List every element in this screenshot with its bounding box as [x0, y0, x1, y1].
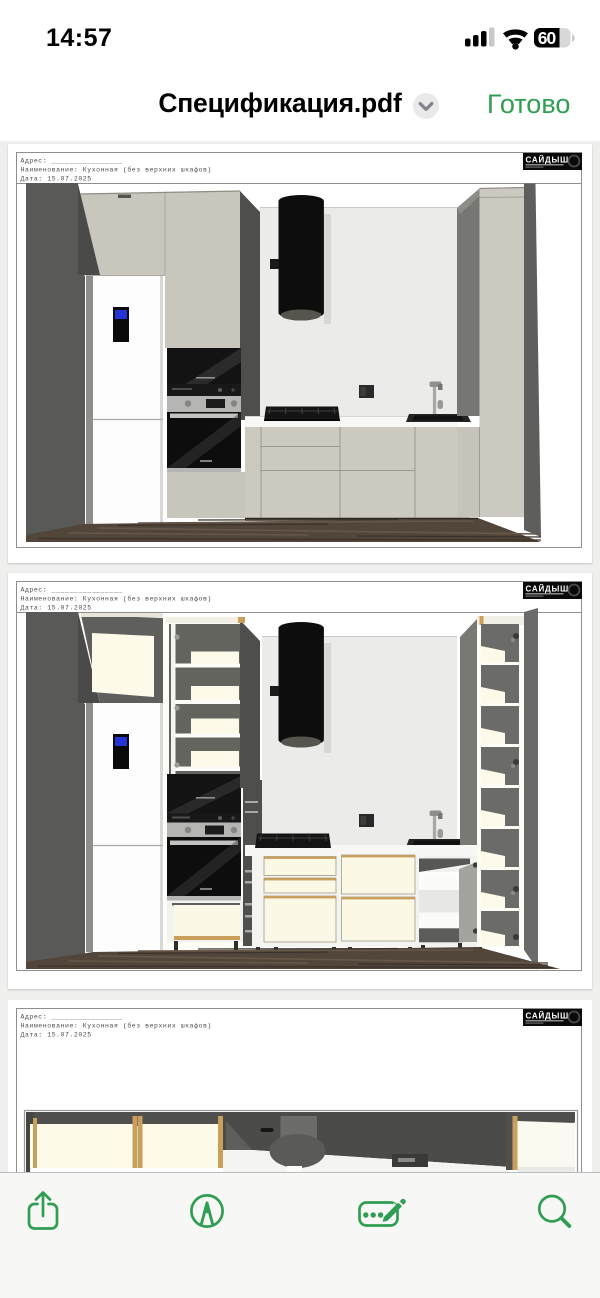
svg-text:60: 60 [538, 28, 557, 48]
svg-text:Наименование: Кухонная (без ве: Наименование: Кухонная (без верхних шкаф… [21, 595, 212, 603]
svg-text:САЙДЫШ: САЙДЫШ [526, 585, 569, 594]
svg-text:Дата: 15.07.2025: Дата: 15.07.2025 [21, 605, 92, 612]
svg-text:Дата: 15.07.2025: Дата: 15.07.2025 [21, 176, 92, 183]
svg-text:Адрес: ________________: Адрес: ________________ [21, 587, 123, 594]
svg-text:Наименование: Кухонная (без ве: Наименование: Кухонная (без верхних шкаф… [21, 166, 212, 174]
svg-text:САЙДЫШ: САЙДЫШ [526, 1012, 569, 1021]
svg-text:Адрес: ________________: Адрес: ________________ [21, 1014, 123, 1021]
svg-text:Наименование: Кухонная (без ве: Наименование: Кухонная (без верхних шкаф… [21, 1022, 212, 1030]
svg-text:Дата: 15.07.2025: Дата: 15.07.2025 [21, 1032, 92, 1039]
svg-text:САЙДЫШ: САЙДЫШ [526, 156, 569, 165]
svg-text:Адрес: ________________: Адрес: ________________ [21, 158, 123, 165]
